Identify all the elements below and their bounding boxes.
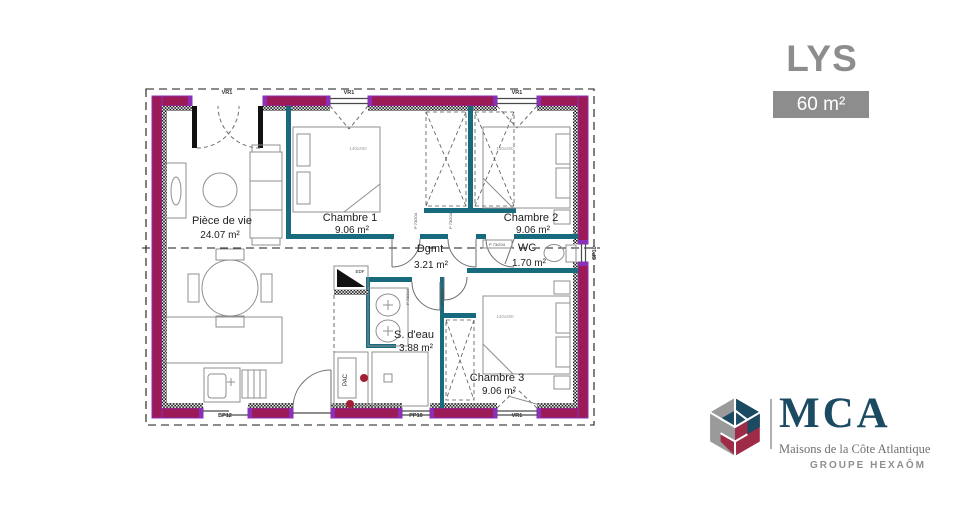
window-top-1	[330, 99, 368, 130]
pac-label: PAC	[343, 373, 349, 386]
brand-name: MCA	[779, 391, 929, 437]
room-area-chambre2: 9.06 m²	[516, 225, 551, 236]
window-right-sp10	[582, 244, 586, 262]
door-label-ch1: P 73/204	[413, 212, 418, 229]
room-area-piece-de-vie: 24.07 m²	[200, 230, 240, 241]
bed-size-ch1: 140x200	[349, 146, 367, 151]
pac-heat-pump	[334, 352, 368, 408]
label-vr1-top1: VR1	[222, 90, 233, 96]
door-label-ch2: P 73/204	[448, 212, 453, 229]
bed-chambre1	[293, 127, 380, 212]
bed-size-ch3: 140x200	[496, 314, 514, 319]
armchair	[203, 173, 237, 207]
room-label-chambre2: Chambre 2	[504, 212, 558, 224]
door-size-labels: P 73/204 P 73/204 P 73/204 P 73/204 P 73…	[405, 212, 512, 305]
door-label-sdeau: P 73/204	[405, 288, 410, 305]
room-label-piece-de-vie: Pièce de vie	[192, 215, 252, 227]
room-area-wc: 1.70 m²	[512, 258, 547, 269]
kitchen-counter	[166, 317, 282, 402]
interior-doors	[392, 239, 514, 310]
window-top-2	[497, 99, 537, 129]
entry-door-bottom	[293, 370, 331, 413]
label-pp10: PP10	[409, 413, 422, 419]
room-label-chambre3: Chambre 3	[470, 372, 524, 384]
shower	[372, 352, 428, 406]
page-title: LYS	[770, 38, 874, 80]
room-area-chambre1: 9.06 m²	[335, 225, 370, 236]
area-badge: 60 m²	[773, 91, 869, 118]
room-area-chambre3: 9.06 m²	[482, 386, 517, 397]
room-label-chambre1: Chambre 1	[323, 212, 377, 224]
room-label-sdeau: S. d'eau	[394, 329, 434, 341]
label-sp10: SP10	[592, 246, 598, 259]
entry-double-door	[192, 106, 263, 148]
edf-label: EDF	[356, 269, 365, 274]
label-bp12: BP12	[218, 413, 232, 419]
room-labels: Pièce de vie 24.07 m² Chambre 1 9.06 m² …	[192, 212, 558, 405]
dining-table	[188, 249, 272, 327]
label-vr1-top2: VR1	[344, 90, 355, 96]
tv-unit	[166, 163, 186, 218]
room-label-wc: WC	[518, 242, 536, 254]
room-area-sdeau: 3.88 m²	[399, 343, 434, 354]
door-label-wc: P 73/204	[489, 242, 506, 247]
mca-logo-cube	[706, 396, 764, 458]
door-label-ch3: P 73/204	[440, 288, 445, 305]
sofa	[250, 145, 282, 245]
bed-size-ch2: 140x200	[496, 146, 514, 151]
brand-group: GROUPE HEXAÔM	[779, 460, 926, 471]
label-vr1-top3: VR1	[512, 90, 523, 96]
room-area-dgmt: 3.21 m²	[414, 260, 449, 271]
exterior-walls	[152, 96, 588, 418]
interior-partitions	[286, 106, 578, 408]
brand-tagline: Maisons de la Côte Atlantique	[779, 442, 949, 457]
logo-separator	[770, 399, 772, 449]
opening-labels: VR1 VR1 VR1 BP12 PP10 VR1 SP10	[218, 90, 598, 419]
room-label-dgmt: Dgmt	[417, 243, 443, 255]
toilet	[544, 245, 576, 263]
label-vr1-bottom: VR1	[512, 413, 523, 419]
